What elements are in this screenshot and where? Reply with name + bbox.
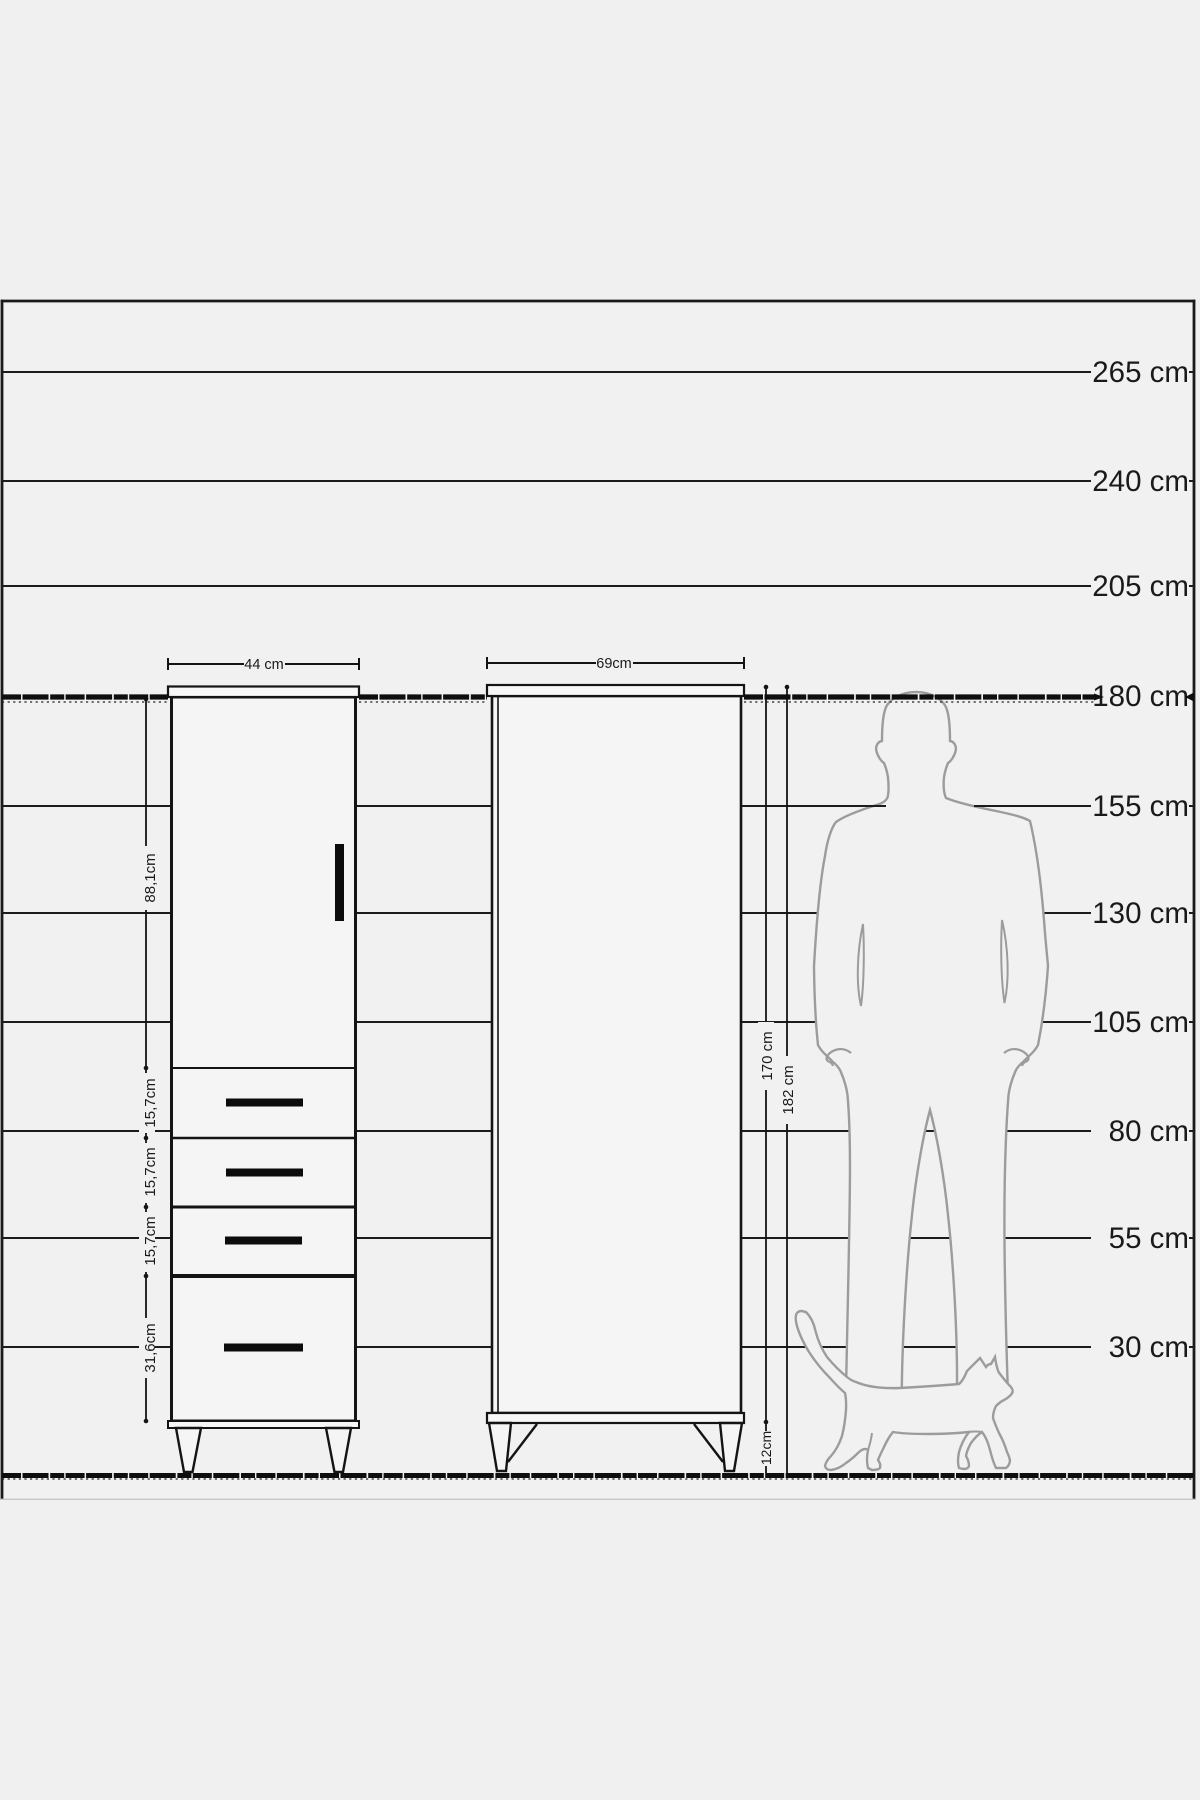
svg-text:170 cm: 170 cm xyxy=(759,1031,776,1080)
svg-text:180 cm: 180 cm xyxy=(1092,680,1189,713)
svg-text:15,7cm: 15,7cm xyxy=(142,1216,159,1265)
svg-text:44 cm: 44 cm xyxy=(244,657,284,673)
svg-text:265 cm: 265 cm xyxy=(1092,356,1189,389)
svg-text:130 cm: 130 cm xyxy=(1092,897,1189,930)
svg-text:240 cm: 240 cm xyxy=(1092,465,1189,498)
svg-text:15,7cm: 15,7cm xyxy=(142,1147,159,1196)
svg-text:69cm: 69cm xyxy=(596,656,631,672)
svg-text:105 cm: 105 cm xyxy=(1092,1006,1189,1039)
svg-text:205 cm: 205 cm xyxy=(1092,570,1189,603)
svg-text:80 cm: 80 cm xyxy=(1109,1115,1189,1148)
svg-text:155 cm: 155 cm xyxy=(1092,790,1189,823)
svg-text:30 cm: 30 cm xyxy=(1109,1331,1189,1364)
svg-text:31,6cm: 31,6cm xyxy=(142,1323,159,1372)
svg-text:88,1cm: 88,1cm xyxy=(142,853,159,902)
svg-text:182 cm: 182 cm xyxy=(780,1065,797,1114)
svg-text:12cm: 12cm xyxy=(758,1431,774,1465)
svg-text:55 cm: 55 cm xyxy=(1109,1222,1189,1255)
svg-text:15,7cm: 15,7cm xyxy=(142,1078,159,1127)
